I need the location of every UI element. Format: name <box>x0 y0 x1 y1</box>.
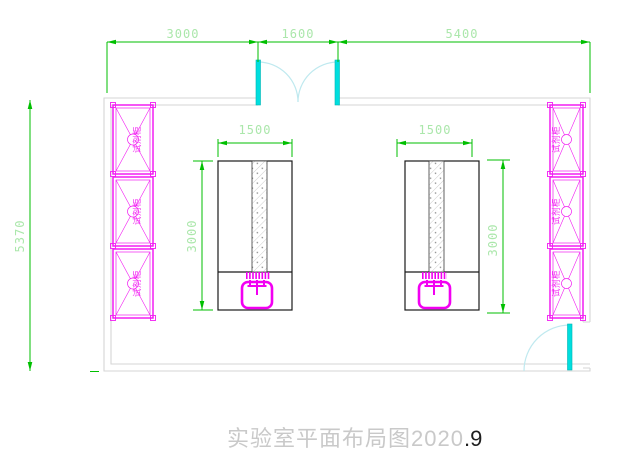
cabinet-label: 试剂柜 <box>551 270 561 297</box>
cabinet-knob <box>562 135 572 145</box>
reagent-shelf <box>429 161 444 272</box>
drawing-canvas: 试剂柜 试剂柜 试剂柜 <box>0 0 619 469</box>
dim-label: 5400 <box>446 27 479 41</box>
dim-label: 3000 <box>185 220 199 253</box>
cabinet-column-left: 试剂柜 试剂柜 试剂柜 <box>111 103 156 321</box>
dim-label: 3000 <box>167 27 200 41</box>
dimension-top: 3000 1600 5400 <box>107 27 590 93</box>
reagent-shelf <box>252 161 267 272</box>
cabinet-right-1: 试剂柜 <box>550 105 583 174</box>
bench-right <box>405 161 479 310</box>
dim-label: 1500 <box>419 123 452 137</box>
cabinet-label: 试剂柜 <box>551 126 561 153</box>
cabinet-right-3: 试剂柜 <box>550 249 583 318</box>
wall-inner <box>111 105 583 364</box>
cabinet-left-2: 试剂柜 <box>113 177 153 246</box>
cabinet-right-2: 试剂柜 <box>550 177 583 246</box>
door-leaf-left <box>256 60 261 105</box>
drawing-title-accent: .9 <box>464 426 482 451</box>
cabinet-knob <box>562 279 572 289</box>
dim-label: 3000 <box>486 224 500 257</box>
dim-label: 1500 <box>239 123 272 137</box>
cabinet-left-1: 试剂柜 <box>113 105 153 174</box>
cabinet-knob <box>562 207 572 217</box>
door-leaf <box>568 324 573 370</box>
cabinet-label: 试剂柜 <box>132 198 142 225</box>
double-door-top <box>256 60 340 105</box>
cabinet-label: 试剂柜 <box>551 198 561 225</box>
wall-outline <box>104 98 590 371</box>
dim-label: 5370 <box>13 220 27 253</box>
door-leaf-right <box>335 60 340 105</box>
wall-jambs <box>258 98 590 368</box>
cabinet-label: 试剂柜 <box>132 126 142 153</box>
cabinet-column-right: 试剂柜 试剂柜 试剂柜 <box>548 103 586 321</box>
bench-left <box>218 161 292 310</box>
door-swing-arc-right <box>298 62 338 102</box>
door-swing-arc-left <box>258 62 298 102</box>
dim-label: 1600 <box>282 27 315 41</box>
wall-outer <box>104 98 590 371</box>
cabinet-left-3: 试剂柜 <box>113 249 153 318</box>
cabinet-label: 试剂柜 <box>132 270 142 297</box>
dimension-left-overall: 5370 <box>13 100 99 372</box>
dimension-bench-right: 1500 3000 <box>397 123 510 313</box>
drawing-title-main: 实验室平面布局图2020 <box>227 426 464 451</box>
drawing-title: 实验室平面布局图2020.9 <box>227 426 482 451</box>
floor-plan: 试剂柜 试剂柜 试剂柜 <box>0 0 619 469</box>
dimension-bench-left: 1500 3000 <box>185 123 292 310</box>
